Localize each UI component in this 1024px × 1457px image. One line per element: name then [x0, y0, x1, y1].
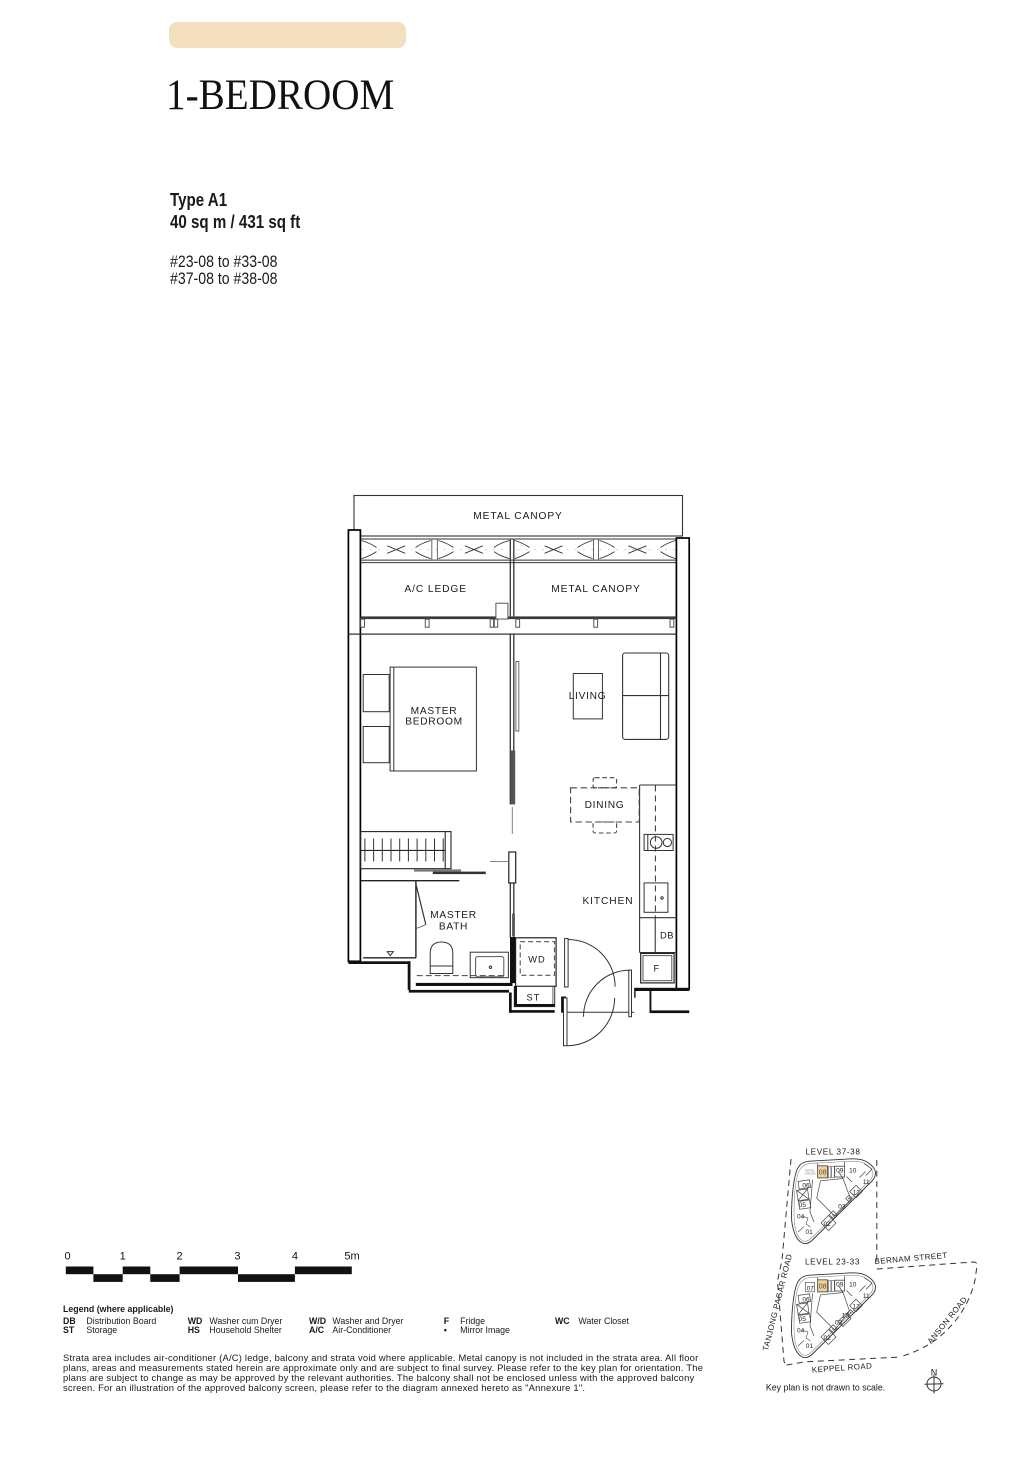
svg-text:TANJONG PAGAR ROAD: TANJONG PAGAR ROAD — [761, 1253, 794, 1352]
svg-text:3: 3 — [234, 1251, 240, 1263]
svg-text:LEVEL 23-33: LEVEL 23-33 — [805, 1258, 860, 1267]
svg-text:04: 04 — [797, 1328, 805, 1335]
svg-text:02: 02 — [823, 1335, 831, 1342]
svg-text:03: 03 — [838, 1203, 846, 1210]
svg-text:DINING: DINING — [585, 800, 625, 811]
svg-text:KITCHEN: KITCHEN — [582, 896, 633, 907]
svg-text:MASTER: MASTER — [430, 910, 477, 921]
svg-text:MASTER: MASTER — [411, 706, 458, 717]
svg-text:METAL CANOPY: METAL CANOPY — [473, 511, 562, 522]
svg-text:5m: 5m — [344, 1251, 359, 1263]
svg-text:09: 09 — [836, 1281, 844, 1288]
svg-text:10: 10 — [849, 1281, 857, 1288]
svg-text:06: 06 — [802, 1183, 810, 1190]
svg-text:2: 2 — [177, 1251, 183, 1263]
svg-text:11: 11 — [863, 1293, 870, 1300]
svg-text:04: 04 — [797, 1214, 805, 1221]
svg-text:LIVING: LIVING — [569, 691, 607, 702]
svg-text:08: 08 — [819, 1281, 827, 1290]
svg-text:GARDEN: GARDEN — [804, 1171, 815, 1175]
svg-text:05: 05 — [799, 1202, 807, 1209]
svg-text:06: 06 — [802, 1297, 810, 1304]
svg-text:12: 12 — [853, 1189, 861, 1196]
svg-text:0: 0 — [64, 1251, 70, 1263]
svg-text:02: 02 — [823, 1221, 831, 1228]
svg-text:ANSON ROAD: ANSON ROAD — [926, 1295, 969, 1346]
svg-text:03: 03 — [835, 1319, 843, 1326]
svg-text:LEVEL 37-38: LEVEL 37-38 — [805, 1148, 860, 1157]
svg-text:1: 1 — [120, 1251, 126, 1263]
svg-text:METAL CANOPY: METAL CANOPY — [551, 584, 640, 595]
svg-text:07: 07 — [807, 1285, 815, 1292]
svg-text:12: 12 — [853, 1303, 861, 1310]
svg-text:BERNAM STREET: BERNAM STREET — [874, 1251, 948, 1266]
svg-text:10: 10 — [849, 1167, 857, 1174]
svg-text:WD: WD — [528, 955, 546, 965]
svg-text:F: F — [653, 964, 659, 974]
svg-text:09: 09 — [836, 1167, 844, 1174]
svg-text:08: 08 — [819, 1167, 827, 1176]
svg-text:11: 11 — [863, 1179, 870, 1186]
svg-text:4: 4 — [292, 1251, 298, 1263]
svg-text:ST: ST — [527, 993, 541, 1003]
svg-text:KEPPEL ROAD: KEPPEL ROAD — [812, 1361, 873, 1374]
svg-text:A/C LEDGE: A/C LEDGE — [404, 584, 466, 595]
svg-text:DB: DB — [660, 931, 674, 941]
svg-text:01: 01 — [806, 1343, 814, 1350]
svg-text:BEDROOM: BEDROOM — [405, 717, 463, 728]
svg-text:N: N — [931, 1368, 938, 1378]
svg-text:05: 05 — [799, 1316, 807, 1323]
svg-text:01: 01 — [805, 1229, 813, 1236]
svg-text:BATH: BATH — [439, 922, 468, 933]
svg-text:Key plan is not drawn to scale: Key plan is not drawn to scale. — [766, 1383, 885, 1393]
svg-text:13: 13 — [842, 1312, 850, 1319]
